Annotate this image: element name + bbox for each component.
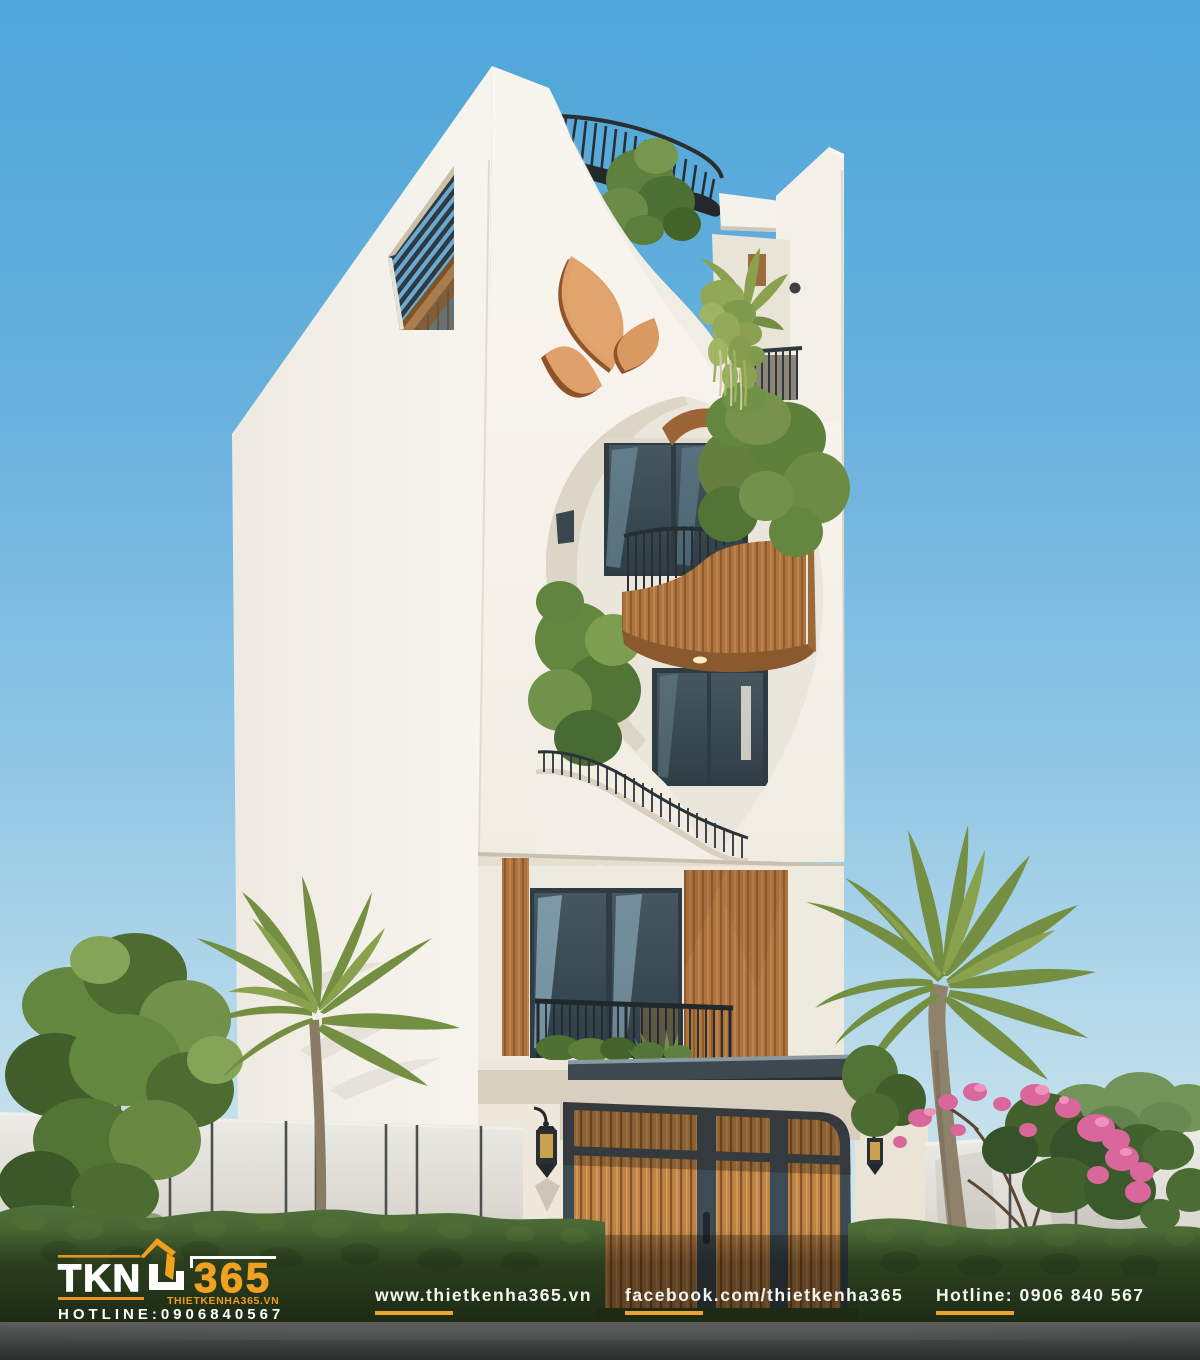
svg-text:TKN: TKN — [58, 1258, 142, 1300]
svg-text:HOTLINE:0906840567: HOTLINE:0906840567 — [58, 1306, 284, 1323]
svg-text:www.thietkenha365.vn: www.thietkenha365.vn — [374, 1285, 592, 1305]
svg-text:facebook.com/thietkenha365: facebook.com/thietkenha365 — [625, 1285, 903, 1305]
svg-text:Hotline: 0906 840 567: Hotline: 0906 840 567 — [936, 1285, 1145, 1305]
svg-text:365: 365 — [194, 1254, 272, 1301]
